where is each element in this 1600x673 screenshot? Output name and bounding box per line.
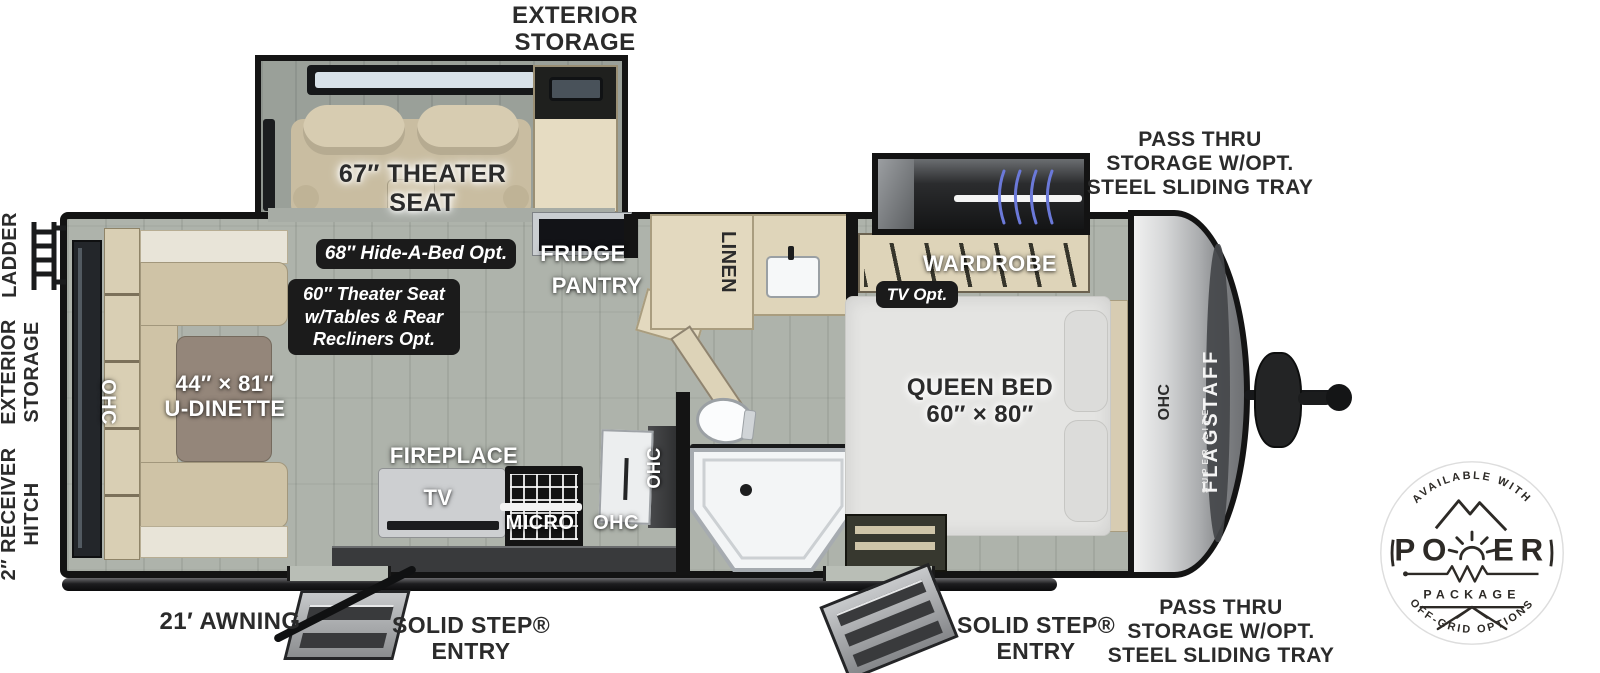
wall (846, 214, 858, 300)
exterior-storage-top-label: EXTERIOR STORAGE (450, 2, 700, 57)
theater-seat-cushion (417, 105, 519, 155)
entry-front-label: SOLID STEP® ENTRY (385, 612, 557, 664)
ladder-icon (20, 216, 68, 296)
door-handle (623, 458, 628, 500)
bed-step-bench (845, 514, 947, 572)
hitch-coupler (1326, 384, 1352, 411)
bath-sink (766, 256, 820, 298)
propane-cover (1254, 352, 1302, 448)
theater-seat-option-pill: 60″ Theater Seat w/Tables & Rear Recline… (288, 279, 460, 355)
tv-option-pill: TV Opt. (876, 281, 958, 308)
slideout-window (307, 65, 543, 95)
microwave-shelf (500, 503, 582, 511)
queen-bed-label: QUEEN BED 60″ × 80″ (888, 374, 1072, 429)
pantry-label: PANTRY (535, 274, 659, 299)
badge-power-right: ER (1493, 533, 1550, 568)
flagstaff-floorplan: FLAGSTAFF SUPER LITE OHC EXTERIOR STORAG… (0, 0, 1600, 673)
brand-subname: SUPER LITE (1201, 406, 1211, 493)
brand-logo: FLAGSTAFF SUPER LITE (1201, 321, 1235, 493)
micro-label: MICRO (498, 512, 582, 534)
hide-a-bed-option-pill: 68″ Hide-A-Bed Opt. (316, 239, 516, 269)
dinette-backrest (140, 526, 288, 558)
dinette-bench-bottom (140, 462, 288, 528)
linen-label: LINEN (717, 226, 739, 298)
theater-seat-cushion (303, 105, 405, 155)
bath-vanity (752, 214, 848, 316)
pillow (1064, 420, 1108, 522)
ohc-front-label: OHC (1156, 372, 1176, 432)
shower (690, 448, 858, 574)
entry-door-front (287, 566, 391, 581)
pass-thru-top-label: PASS THRU STORAGE W/OPT. STEEL SLIDING T… (1068, 128, 1332, 200)
slideout-side-window (263, 119, 275, 211)
ohc-dinette-label: OHC (97, 366, 119, 438)
wall (676, 392, 690, 575)
receiver-hitch-label: 2″ RECEIVER HITCH (0, 434, 46, 594)
power-package-badge: AVAILABLE WITH OFF-GRID OPTIONS PO ER PA… (1377, 458, 1567, 648)
tv-screen (387, 521, 499, 530)
faucet-icon (788, 246, 794, 260)
pass-thru-storage (872, 153, 1090, 235)
ohc-kitchen-label: OHC (586, 512, 646, 534)
fireplace-label: FIREPLACE (388, 444, 520, 469)
u-dinette-label: 44″ × 81″ U-DINETTE (145, 372, 305, 421)
theater-seat-label: 67″ THEATER SEAT (295, 160, 550, 217)
dinette-bench-top (140, 262, 288, 326)
pass-thru-bottom-label: PASS THRU STORAGE W/OPT. STEEL SLIDING T… (1085, 596, 1357, 668)
fridge-label: FRIDGE (528, 242, 638, 267)
exterior-storage-side-label: EXTERIOR STORAGE (0, 287, 46, 457)
awning-label: 21′ AWNING (100, 608, 360, 635)
cabinet-window (549, 77, 603, 101)
badge-package: PACKAGE (1423, 588, 1520, 602)
dinette-backrest (140, 230, 288, 264)
badge-power-left: PO (1394, 533, 1453, 568)
tv-label: TV (406, 486, 470, 511)
wardrobe-label: WARDROBE (905, 252, 1075, 277)
ohc-sink-label: OHC (644, 433, 666, 503)
